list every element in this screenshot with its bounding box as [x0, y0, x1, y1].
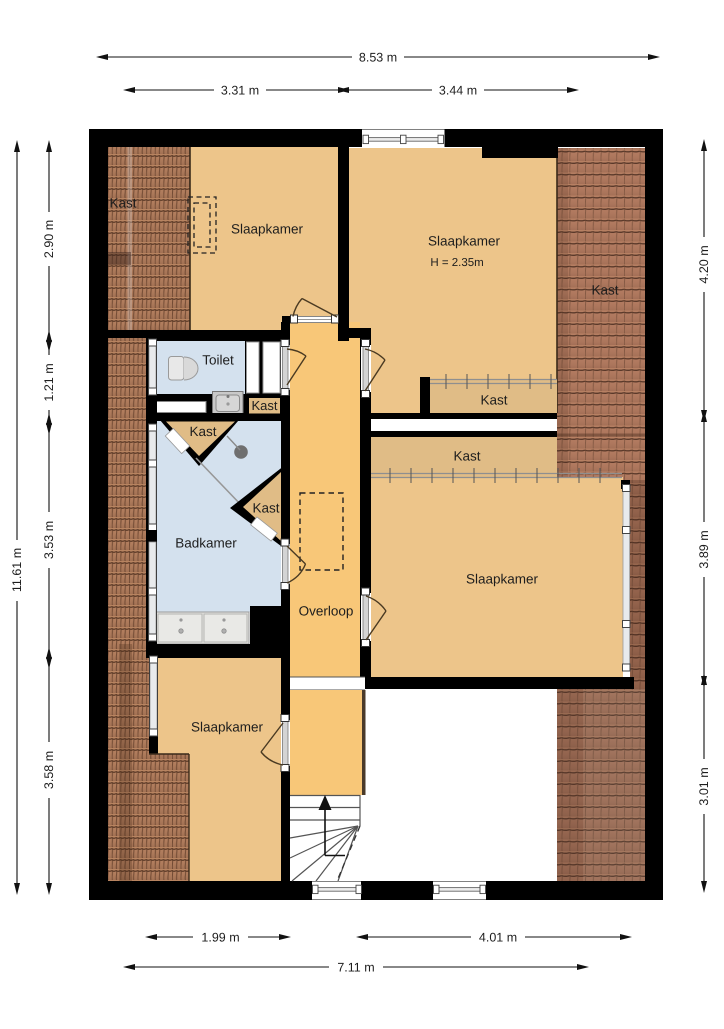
svg-text:Kast: Kast: [252, 501, 279, 516]
svg-text:3.01 m: 3.01 m: [697, 767, 711, 805]
svg-text:H = 2.35m: H = 2.35m: [430, 257, 483, 269]
svg-text:2.90 m: 2.90 m: [42, 220, 56, 258]
svg-text:3.58 m: 3.58 m: [42, 751, 56, 789]
svg-text:8.53 m: 8.53 m: [359, 51, 397, 65]
svg-text:Kast: Kast: [189, 424, 216, 439]
svg-text:3.89 m: 3.89 m: [697, 530, 711, 568]
svg-text:Kast: Kast: [251, 398, 277, 413]
svg-text:Toilet: Toilet: [202, 353, 234, 368]
svg-text:Overloop: Overloop: [299, 604, 354, 619]
svg-text:Kast: Kast: [109, 196, 136, 211]
svg-text:Kast: Kast: [453, 449, 480, 464]
svg-text:1.21 m: 1.21 m: [42, 363, 56, 401]
svg-text:4.01 m: 4.01 m: [479, 931, 517, 945]
svg-text:7.11 m: 7.11 m: [337, 961, 374, 975]
svg-text:Kast: Kast: [480, 393, 507, 408]
svg-text:3.31 m: 3.31 m: [221, 84, 259, 98]
svg-text:Slaapkamer: Slaapkamer: [428, 234, 501, 249]
svg-text:3.44 m: 3.44 m: [439, 84, 477, 98]
svg-text:1.99 m: 1.99 m: [201, 931, 239, 945]
svg-text:Slaapkamer: Slaapkamer: [191, 720, 264, 735]
svg-text:Slaapkamer: Slaapkamer: [466, 572, 539, 587]
svg-text:4.20 m: 4.20 m: [697, 245, 711, 283]
svg-text:Badkamer: Badkamer: [175, 536, 237, 551]
svg-text:11.61 m: 11.61 m: [10, 548, 24, 592]
svg-text:3.53 m: 3.53 m: [42, 521, 56, 559]
svg-text:Slaapkamer: Slaapkamer: [231, 222, 304, 237]
svg-text:Kast: Kast: [591, 283, 618, 298]
